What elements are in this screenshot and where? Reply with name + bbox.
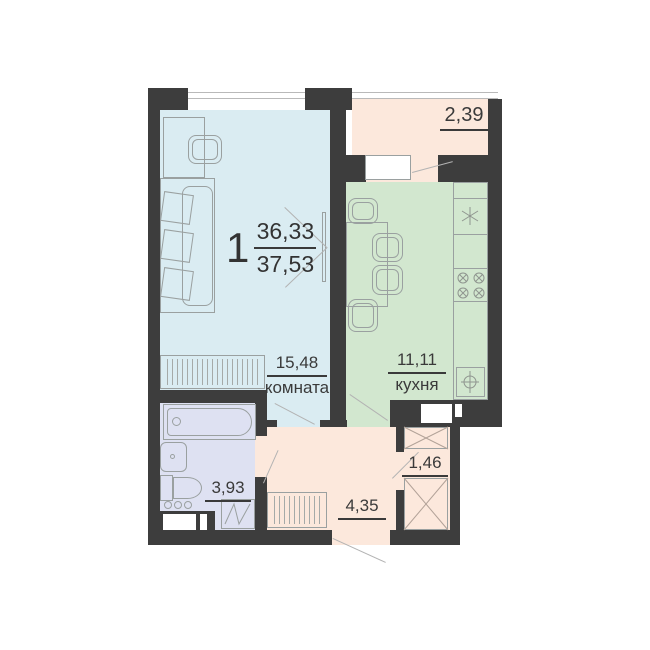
bathroom-sink-drain (170, 454, 175, 459)
shaft-niche-kitchen (421, 404, 452, 423)
toilet-bowl (173, 477, 202, 499)
kitchen-door-opening (347, 420, 390, 427)
shaft-niche-bathroom-small (200, 514, 207, 530)
bathroom-label: 3,93 (204, 479, 252, 504)
living-area-value: 36,33 (257, 218, 315, 245)
wall-top-left-corner (148, 88, 188, 110)
sofa-pillow (160, 191, 194, 225)
storage-underline (402, 475, 448, 477)
kitchen-chair-right-2 (372, 265, 403, 295)
hallway-wardrobe (267, 492, 327, 528)
balcony-glazing-inner (352, 98, 498, 99)
area-fraction: 36,33 37,53 (254, 218, 316, 278)
living-window-line-inner (188, 98, 305, 99)
kitchen-sink-icon (456, 367, 485, 397)
kitchen-chair-right-1 (372, 233, 403, 262)
duct-shaft-bottom-icon (404, 478, 448, 530)
wall-storage-right (450, 427, 460, 545)
shaft-niche-bathroom (163, 514, 196, 530)
kitchen-area-value: 11,11 (384, 351, 450, 369)
fridge-snowflake-icon (453, 198, 488, 235)
wall-living-right (330, 88, 346, 427)
wall-storage-stub-top (396, 427, 404, 452)
wall-bottom-left (148, 530, 332, 545)
storage-area-value: 1,46 (401, 454, 449, 472)
desk-chair (188, 135, 222, 164)
living-room-area-value: 15,48 (262, 354, 332, 372)
kitchen-name: кухня (384, 376, 450, 394)
storage-label: 1,46 (401, 454, 449, 479)
wall-storage-stub-bottom (396, 490, 404, 530)
total-area-value: 37,53 (257, 251, 315, 278)
towel-holder-circle (164, 501, 172, 509)
hallway-label: 4,35 (337, 497, 387, 522)
wall-right (488, 99, 502, 427)
toilet-tank (160, 475, 173, 501)
wall-kitchen-top-left (330, 155, 366, 182)
wall-bottom-right (390, 530, 460, 545)
living-room-label: 15,48 комната (262, 354, 332, 397)
towel-holder-circle (174, 501, 182, 509)
living-room-name: комната (262, 379, 332, 397)
hallway-underline (338, 518, 386, 520)
bathroom-underline (205, 500, 251, 502)
shaft-niche-kitchen-small (455, 404, 462, 417)
fraction-line (254, 247, 316, 249)
balcony-area-value: 2,39 (438, 105, 490, 126)
wall-bathroom-right-lower (255, 477, 267, 532)
living-window-line-outer (188, 92, 305, 93)
living-wardrobe (160, 355, 265, 389)
balcony-glazing-outer (352, 92, 498, 93)
sofa-pillow (160, 229, 194, 263)
wall-left (148, 88, 160, 545)
wall-bathroom-top (148, 390, 267, 403)
towel-holder-circle (184, 501, 192, 509)
wall-hall-top-1 (265, 420, 277, 427)
stove-burners-icon (453, 268, 488, 302)
bathroom-area-value: 3,93 (204, 479, 252, 497)
bathroom-door-opening (255, 436, 267, 477)
bathtub-drain (172, 417, 181, 426)
apartment-summary-label: 1 36,33 37,53 (226, 218, 316, 278)
kitchen-underline (388, 372, 446, 374)
sofa-pillow (160, 267, 194, 301)
living-room-underline (267, 375, 327, 377)
balcony-label: 2,39 (438, 105, 490, 133)
duct-shaft-top-icon (404, 427, 448, 449)
floor-plan: 1 36,33 37,53 2,39 15,48 комната 11,11 к… (0, 0, 650, 650)
hallway-area-value: 4,35 (337, 497, 387, 515)
kitchen-chair-top (348, 198, 378, 224)
kitchen-label: 11,11 кухня (384, 351, 450, 394)
rooms-count-label: 1 (226, 220, 249, 276)
balcony-door-block (365, 155, 411, 180)
balcony-area-underline (440, 129, 488, 131)
wall-hall-top-2 (320, 420, 347, 427)
kitchen-chair-bottom (348, 299, 378, 332)
